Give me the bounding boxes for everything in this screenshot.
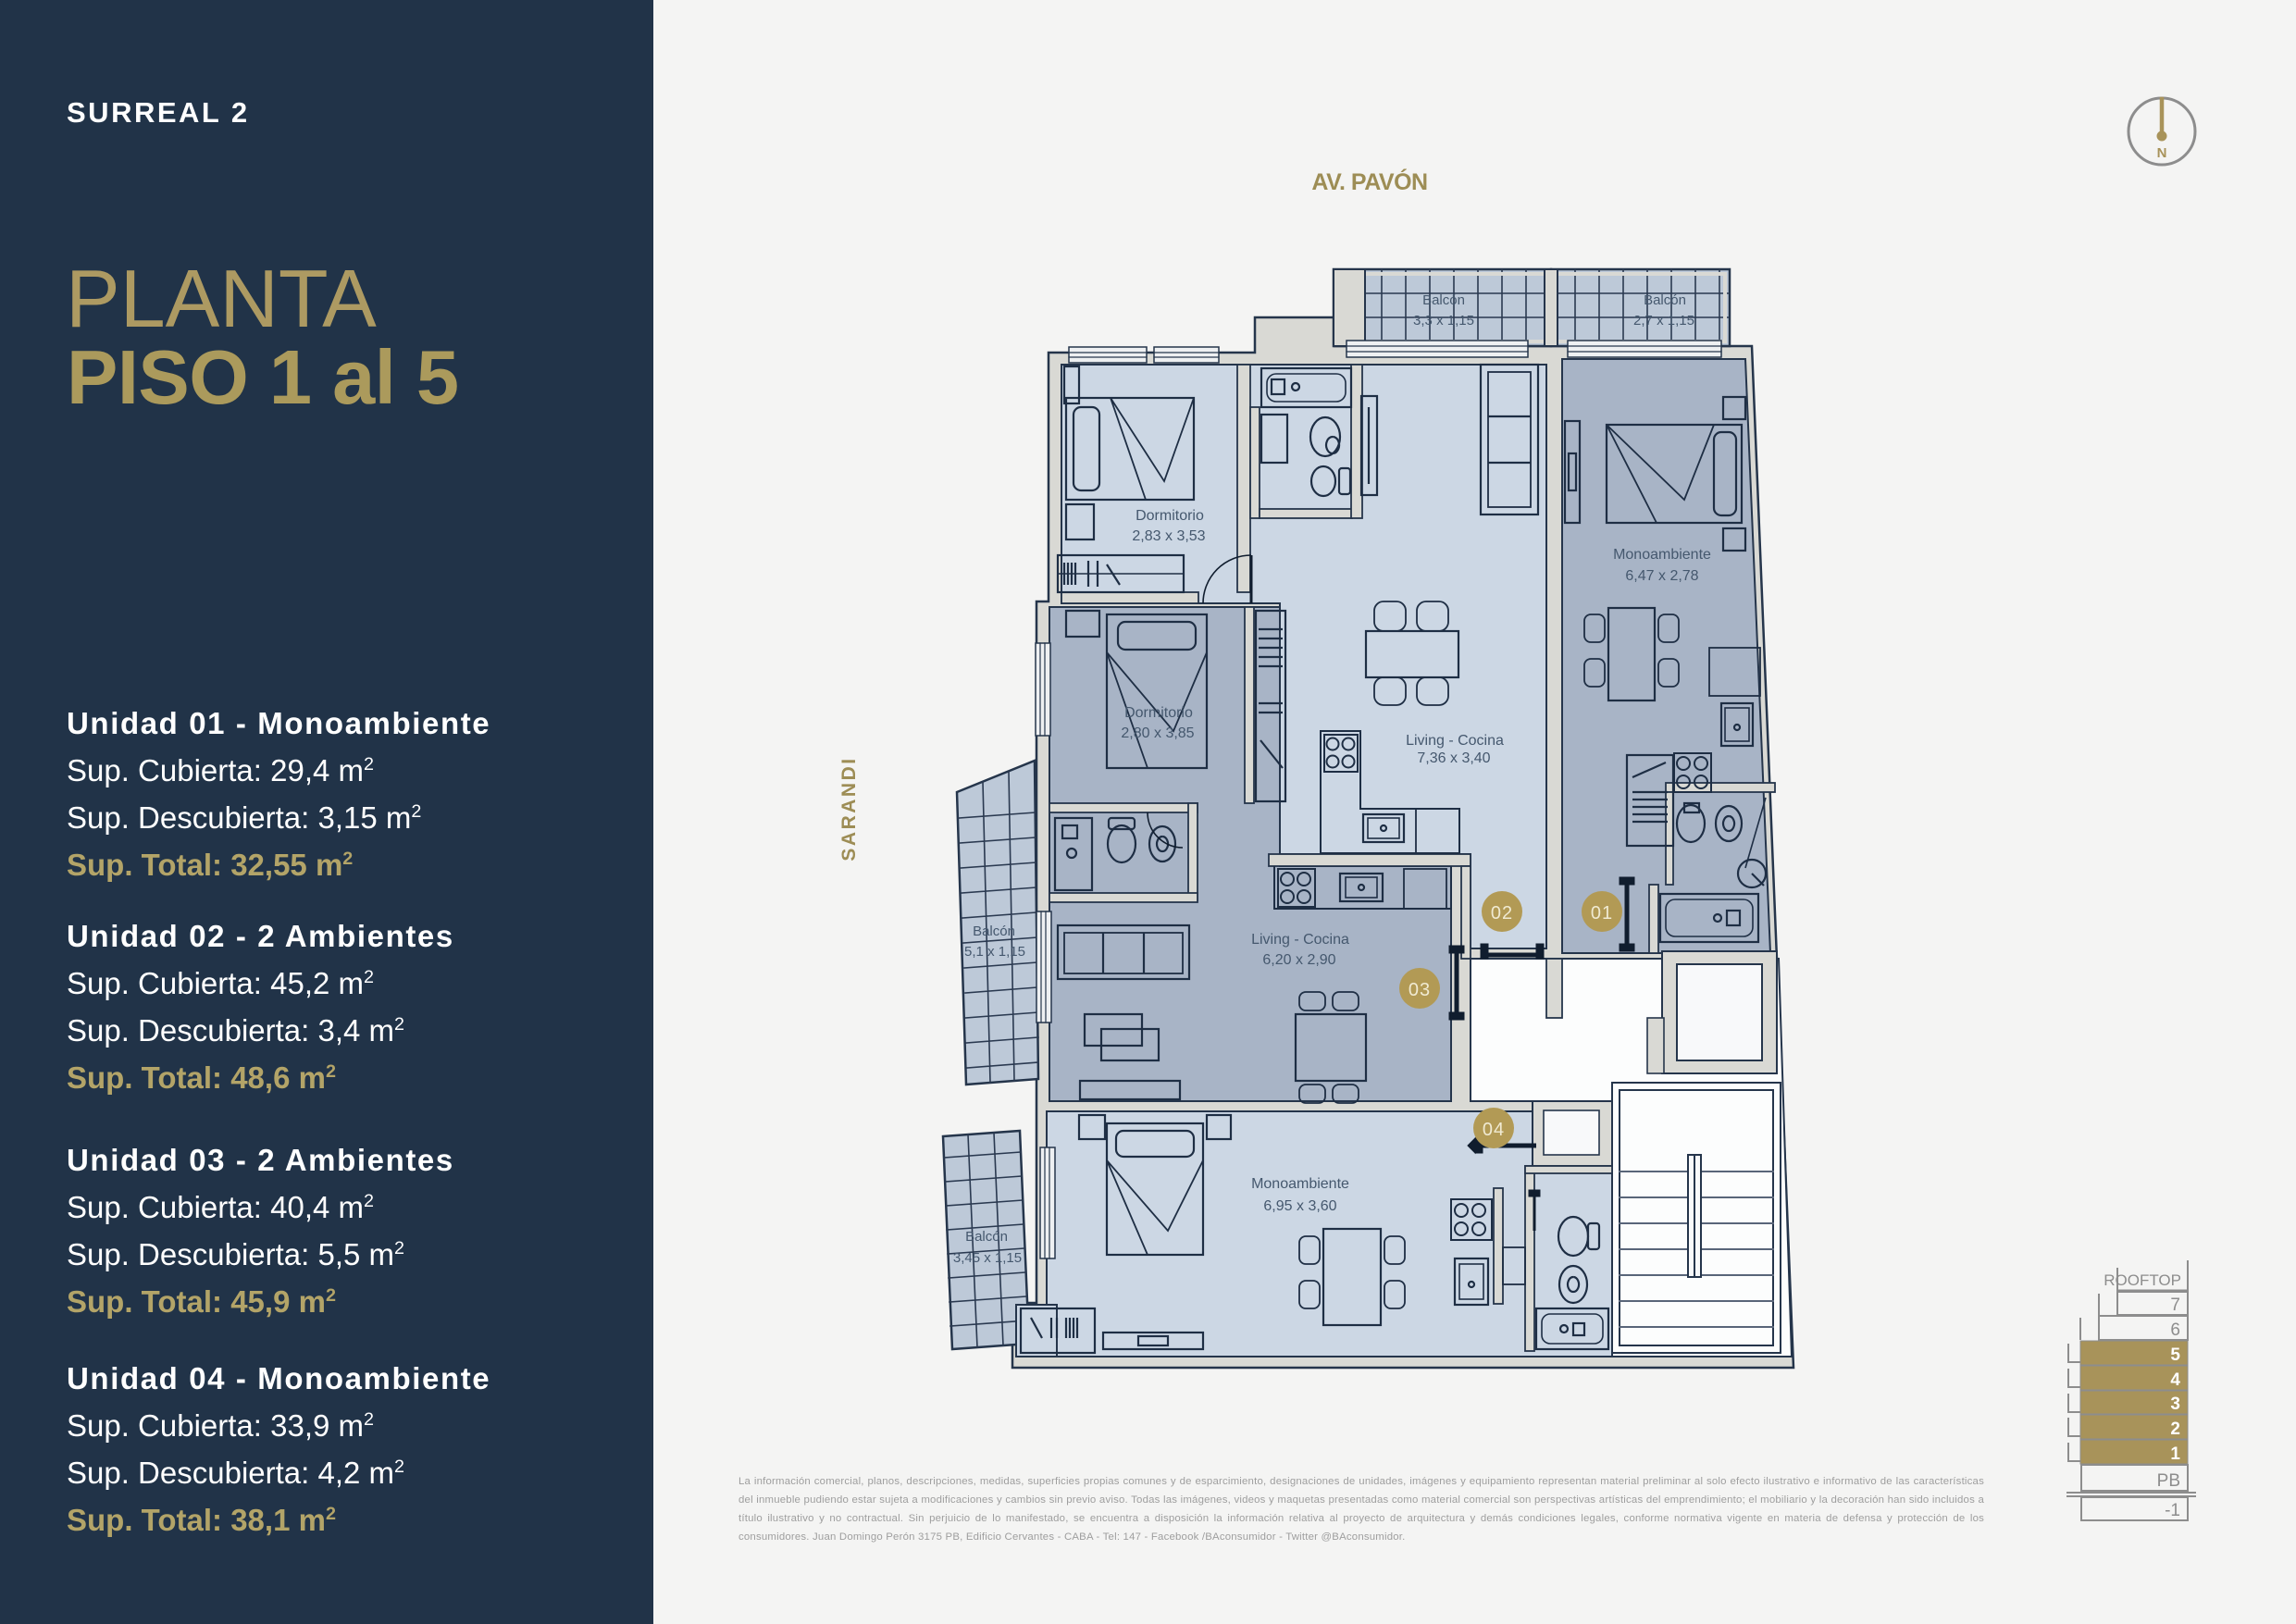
- svg-text:6,20 x 2,90: 6,20 x 2,90: [1262, 952, 1335, 968]
- svg-text:7,36 x 3,40: 7,36 x 3,40: [1417, 750, 1490, 766]
- svg-text:Monoambiente: Monoambiente: [1251, 1176, 1349, 1192]
- svg-text:Balcón: Balcón: [1644, 292, 1686, 308]
- svg-text:6: 6: [2170, 1320, 2180, 1340]
- svg-text:6,47 x 2,78: 6,47 x 2,78: [1625, 568, 1698, 584]
- svg-text:3,3 x 1,15: 3,3 x 1,15: [1413, 313, 1474, 329]
- svg-text:Living - Cocina: Living - Cocina: [1251, 932, 1349, 948]
- svg-text:Balcón: Balcón: [1422, 292, 1465, 308]
- svg-text:N: N: [2157, 145, 2167, 161]
- svg-text:2,80 x 3,85: 2,80 x 3,85: [1121, 725, 1194, 741]
- svg-text:6,95 x 3,60: 6,95 x 3,60: [1263, 1198, 1336, 1214]
- svg-text:Monoambiente: Monoambiente: [1613, 547, 1711, 563]
- svg-text:PB: PB: [2157, 1471, 2180, 1491]
- svg-text:7: 7: [2170, 1295, 2180, 1315]
- svg-text:5: 5: [2170, 1345, 2180, 1365]
- svg-text:Balcón: Balcón: [965, 1229, 1008, 1245]
- svg-text:4: 4: [2170, 1370, 2180, 1390]
- svg-text:-1: -1: [2165, 1501, 2180, 1520]
- svg-text:Living - Cocina: Living - Cocina: [1406, 733, 1504, 749]
- svg-text:2,83 x 3,53: 2,83 x 3,53: [1132, 528, 1205, 544]
- svg-text:1: 1: [2170, 1444, 2180, 1464]
- svg-text:Balcón: Balcón: [973, 924, 1015, 939]
- svg-text:2,7 x 1,15: 2,7 x 1,15: [1633, 313, 1694, 329]
- svg-text:5,1 x 1,15: 5,1 x 1,15: [964, 944, 1025, 960]
- svg-text:Dormitorio: Dormitorio: [1136, 508, 1204, 524]
- svg-text:3,45 x 1,15: 3,45 x 1,15: [953, 1250, 1022, 1266]
- svg-text:03: 03: [1409, 980, 1431, 1000]
- svg-text:01: 01: [1591, 903, 1613, 924]
- svg-text:2: 2: [2170, 1419, 2180, 1439]
- svg-text:3: 3: [2170, 1395, 2180, 1414]
- svg-text:ROOFTOP: ROOFTOP: [2104, 1271, 2181, 1289]
- svg-text:02: 02: [1491, 903, 1513, 924]
- svg-text:04: 04: [1483, 1120, 1505, 1140]
- svg-text:Dormitorio: Dormitorio: [1124, 705, 1193, 721]
